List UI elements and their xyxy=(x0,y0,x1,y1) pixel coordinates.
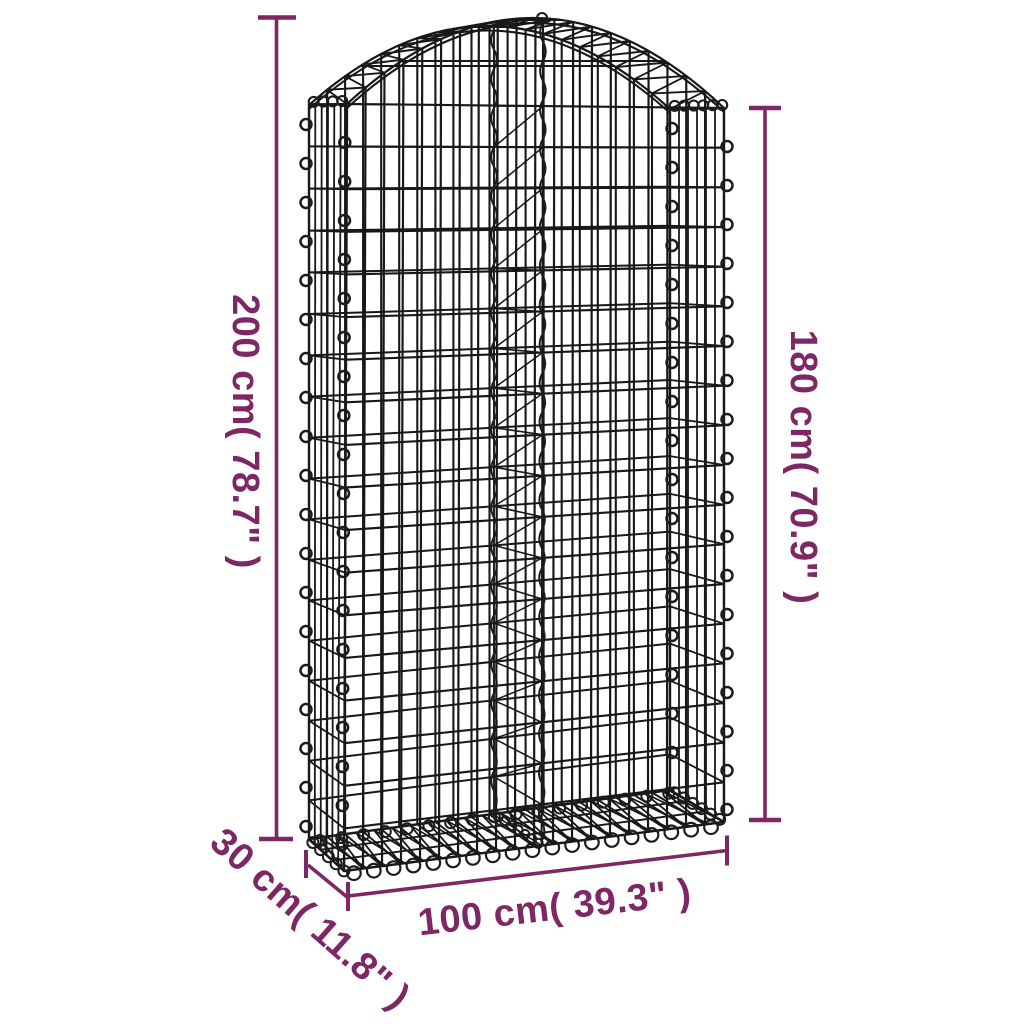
svg-text:180 cm( 70.9" ): 180 cm( 70.9" ) xyxy=(782,330,824,605)
svg-text:200 cm( 78.7" ): 200 cm( 78.7" ) xyxy=(224,294,266,569)
